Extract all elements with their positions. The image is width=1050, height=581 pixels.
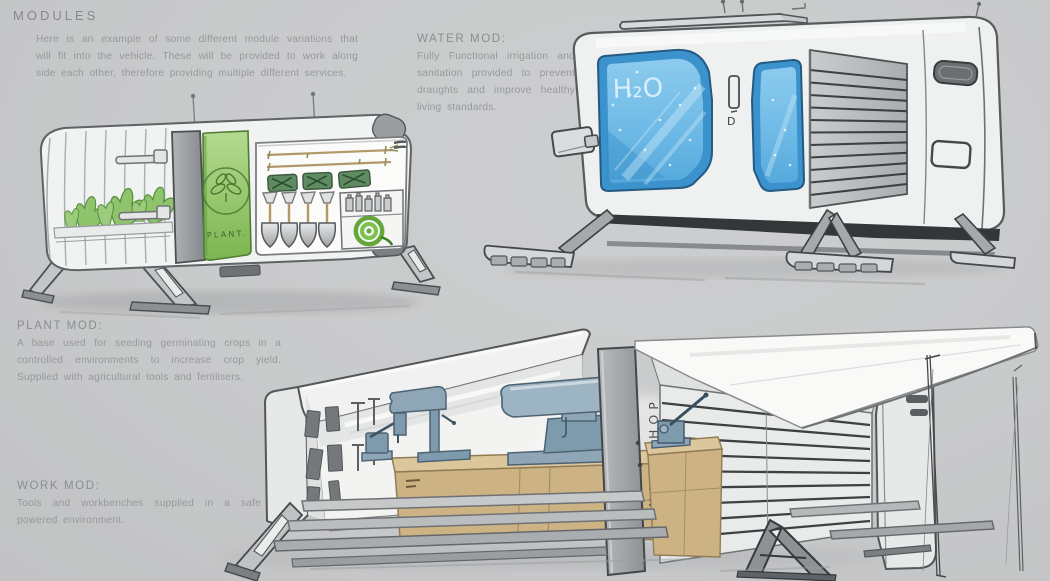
plant-module-shadow: [40, 290, 420, 318]
door-latch: [551, 126, 599, 157]
water-module-sketch: H₂O D: [455, 0, 1020, 295]
concept-art-sheet: MODULES Here is an example of some diffe…: [0, 0, 1050, 581]
wall-handle: [906, 395, 928, 403]
door-handle: [933, 60, 978, 86]
water-window-label: H₂O: [612, 73, 663, 105]
green-door: PLANT.: [203, 131, 251, 260]
water-door-mark: D: [727, 115, 735, 128]
wall-handle: [910, 409, 928, 416]
tool-bay: [256, 137, 407, 255]
vent-slats: [810, 50, 907, 208]
canopy-poles: [923, 355, 1023, 577]
intro-paragraph: Here is an example of some different mod…: [36, 31, 358, 82]
divider-pillar: [598, 347, 645, 575]
plant-module-sketch: PLANT.: [20, 90, 445, 325]
door-pillar: [172, 131, 205, 263]
work-module-sketch: WORKSHOP: [130, 325, 1050, 581]
page-title: MODULES: [13, 8, 98, 23]
large-water-window: H₂O: [598, 50, 712, 191]
right-cabinet: [645, 437, 722, 557]
narrow-water-window: [752, 60, 804, 191]
supply-compartment: [340, 190, 403, 249]
